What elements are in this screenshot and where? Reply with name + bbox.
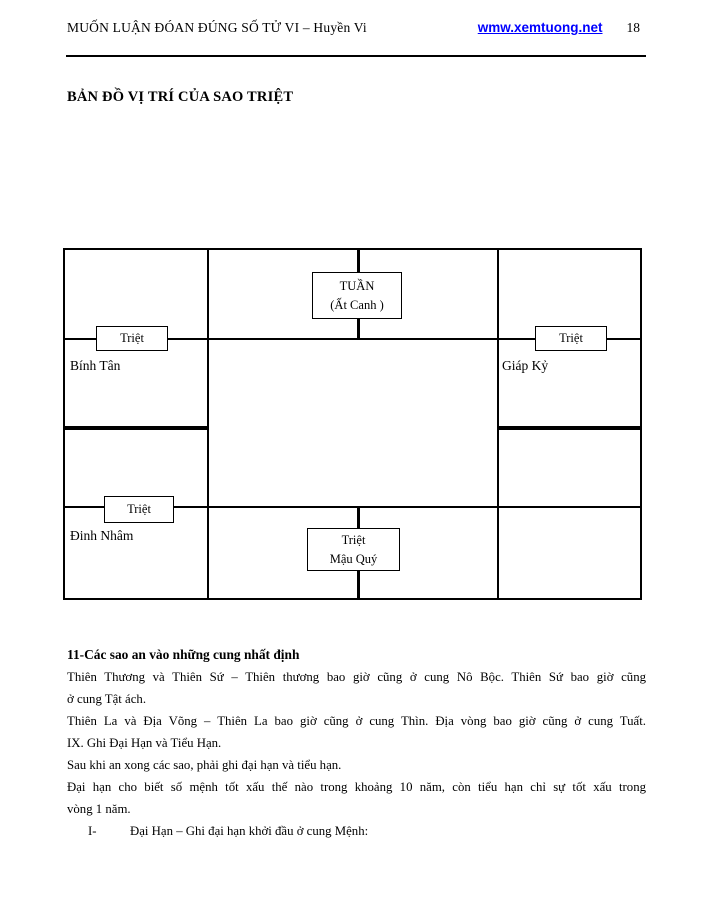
body-text-line: IX. Ghi Đại Hạn và Tiểu Hạn.	[67, 732, 646, 754]
center-stem-top-upper	[357, 250, 360, 274]
page-header: MUỐN LUẬN ĐÓAN ĐÚNG SỐ TỬ VI – Huyền Vi …	[67, 20, 646, 36]
triet-mau-quy-box: Triệt Mậu Quý	[307, 528, 400, 571]
triet-box-bottom-left: Triệt	[104, 496, 174, 523]
grid-line-thick-right	[497, 426, 640, 430]
body-text-line: Sau khi an xong các sao, phải ghi đại hạ…	[67, 754, 646, 776]
triet-box-top-right: Triệt	[535, 326, 607, 351]
grid-line-vertical-left	[207, 250, 209, 598]
header-website-link[interactable]: wmw.xemtuong.net	[478, 20, 603, 35]
list-item-dai-han: I-Đại Hạn – Ghi đại hạn khởi đầu ở cung …	[67, 820, 646, 842]
triet-box-bottom-left-label: Triệt	[127, 500, 151, 519]
sao-triet-position-map: TUẦN (Ất Canh ) Triệt Triệt Triệt Triệt …	[63, 248, 642, 600]
triet-box-top-left-label: Triệt	[120, 329, 144, 348]
grid-line-thick-left	[65, 426, 209, 430]
body-text-line: ở cung Tật ách.	[67, 688, 646, 710]
triet-box-top-right-label: Triệt	[559, 329, 583, 348]
list-item-text: Đại Hạn – Ghi đại hạn khởi đầu ở cung Mệ…	[130, 824, 368, 838]
body-heading: 11-Các sao an vào những cung nhất định	[67, 644, 646, 666]
cell-label-dinh-nham: Đinh Nhâm	[70, 528, 133, 544]
center-stem-top-lower	[357, 318, 360, 340]
triet-box-top-left: Triệt	[96, 326, 168, 351]
body-text-line: Đại hạn cho biết số mệnh tốt xấu thế nào…	[67, 776, 646, 798]
header-title: MUỐN LUẬN ĐÓAN ĐÚNG SỐ TỬ VI – Huyền Vi	[67, 20, 478, 36]
body-text-line: Thiên Thương và Thiên Sứ – Thiên thương …	[67, 666, 646, 688]
tuan-box-title: TUẦN	[340, 277, 375, 296]
triet-mau-quy-line1: Triệt	[342, 531, 366, 550]
list-item-marker: I-	[88, 820, 130, 842]
grid-line-vertical-right	[497, 250, 499, 598]
tuan-box: TUẦN (Ất Canh )	[312, 272, 402, 319]
center-stem-bottom-lower	[357, 568, 360, 598]
body-text-line: Thiên La và Địa Võng – Thiên La bao giờ …	[67, 710, 646, 732]
body-text: 11-Các sao an vào những cung nhất định T…	[67, 644, 646, 842]
header-rule	[66, 55, 646, 57]
body-text-line: vòng 1 năm.	[67, 798, 646, 820]
center-stem-bottom-upper	[357, 507, 360, 530]
page-number: 18	[627, 20, 641, 36]
document-page: MUỐN LUẬN ĐÓAN ĐÚNG SỐ TỬ VI – Huyền Vi …	[0, 0, 705, 913]
cell-label-giap-ky: Giáp Kỷ	[502, 358, 548, 374]
triet-mau-quy-line2: Mậu Quý	[330, 550, 378, 569]
section-title: BẢN ĐỒ VỊ TRÍ CỦA SAO TRIỆT	[67, 89, 293, 106]
cell-label-binh-tan: Bính Tân	[70, 358, 120, 374]
tuan-box-subtitle: (Ất Canh )	[330, 296, 383, 315]
